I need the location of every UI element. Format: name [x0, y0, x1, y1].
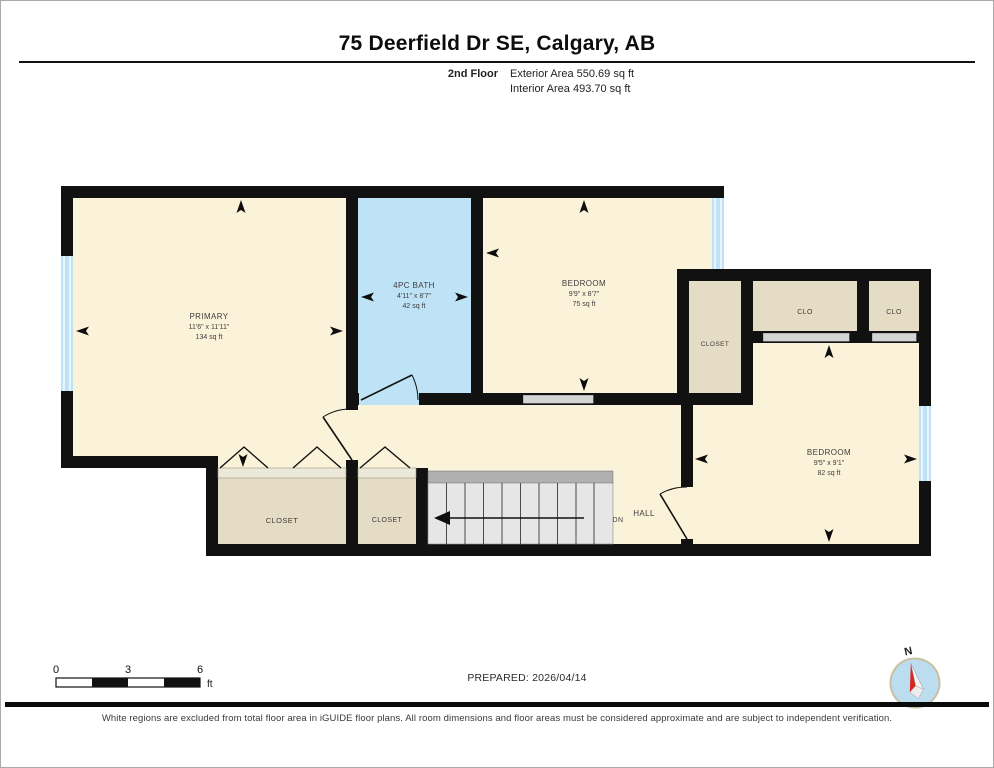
- floorplan-page: 75 Deerfield Dr SE, Calgary, AB 2nd Floo…: [0, 0, 994, 768]
- label-closet-bottom-2: CLOSET: [372, 517, 403, 524]
- prepared-date: PREPARED: 2026/04/14: [31, 672, 994, 684]
- label-hall: HALL: [633, 509, 655, 518]
- room-clo-1: [753, 281, 857, 331]
- stairs: [428, 471, 613, 544]
- compass-north-label: N: [903, 645, 913, 658]
- room-clo-2: [869, 281, 919, 331]
- opening-clo-1: [763, 333, 849, 341]
- footer-divider: [5, 702, 989, 707]
- room-primary: [73, 198, 346, 468]
- label-primary-name: PRIMARY: [189, 312, 228, 321]
- label-bedroom-top-dims: 9'9" x 8'7": [569, 291, 600, 298]
- label-bath-area: 42 sq ft: [403, 303, 426, 310]
- opening-bedroom-top: [523, 395, 593, 403]
- label-bedroom-top-name: BEDROOM: [562, 279, 606, 288]
- label-bedroom-top-area: 75 sq ft: [573, 301, 596, 308]
- label-primary-dims: 11'6" x 11'11": [189, 324, 230, 331]
- label-clo-2: CLO: [886, 309, 902, 316]
- label-primary-area: 134 sq ft: [196, 334, 223, 341]
- floor-plan-svg: PRIMARY 11'6" x 11'11" 134 sq ft 4PC BAT…: [1, 1, 994, 768]
- room-closet-mid: [689, 281, 741, 393]
- label-bedroom-right-dims: 9'5" x 9'1": [814, 460, 845, 467]
- label-bath-dims: 4'11" x 8'7": [397, 293, 431, 300]
- label-closet-bottom-1: CLOSET: [266, 516, 298, 525]
- window-top-right: [712, 198, 724, 269]
- opening-clo-2: [872, 333, 916, 341]
- label-clo-1: CLO: [797, 309, 813, 316]
- label-stairs-dn: DN: [613, 517, 624, 524]
- window-right: [919, 406, 931, 481]
- label-closet-mid: CLOSET: [701, 341, 729, 348]
- disclaimer-text: White regions are excluded from total fl…: [1, 713, 993, 724]
- room-closet-bottom-2: [358, 468, 416, 544]
- label-bedroom-right-area: 82 sq ft: [818, 470, 841, 477]
- label-bedroom-right-name: BEDROOM: [807, 448, 851, 457]
- window-left: [61, 256, 73, 391]
- label-bath-name: 4PC BATH: [393, 281, 435, 290]
- room-closet-bottom-1: [218, 468, 346, 544]
